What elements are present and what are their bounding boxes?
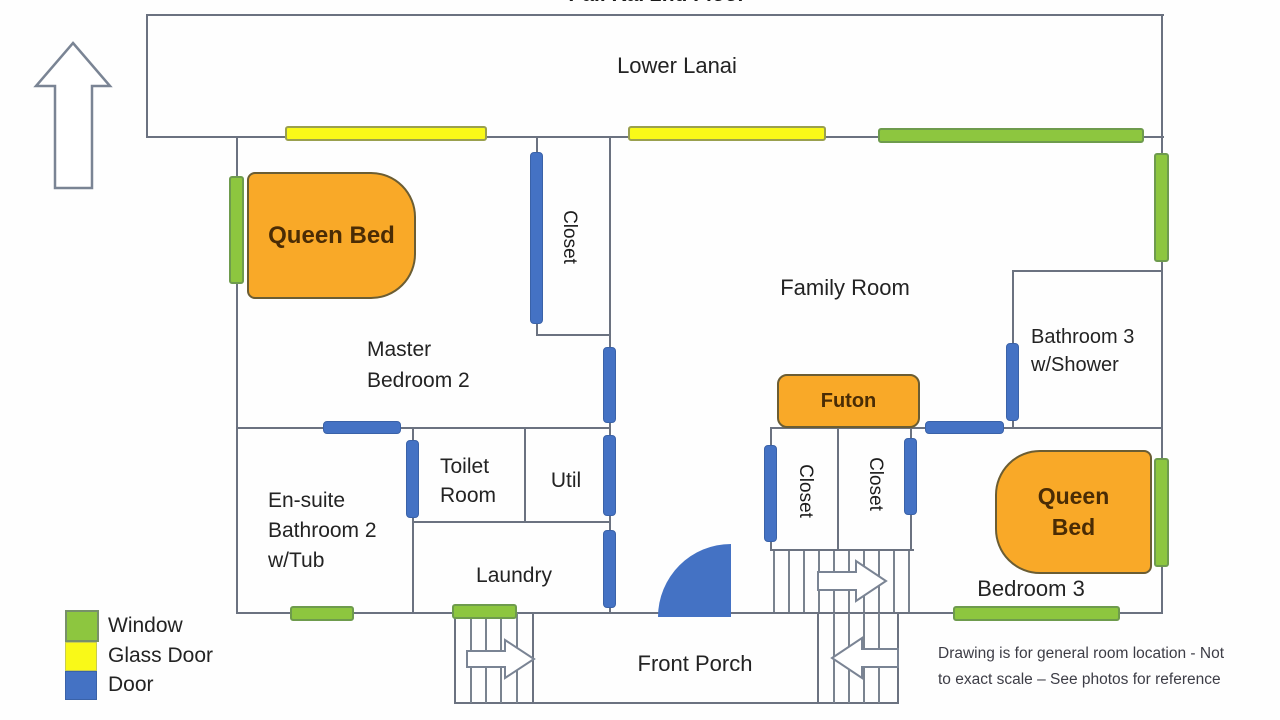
stairs-arrow-right-down	[832, 638, 898, 678]
steps-up-arrow-left	[467, 640, 534, 678]
floor-plan: Pali Kai 2nd Floor	[0, 0, 1280, 720]
ocean-arrow	[36, 43, 110, 188]
stairs-arrow-right-up	[818, 561, 886, 601]
arrows-overlay	[0, 0, 1280, 720]
